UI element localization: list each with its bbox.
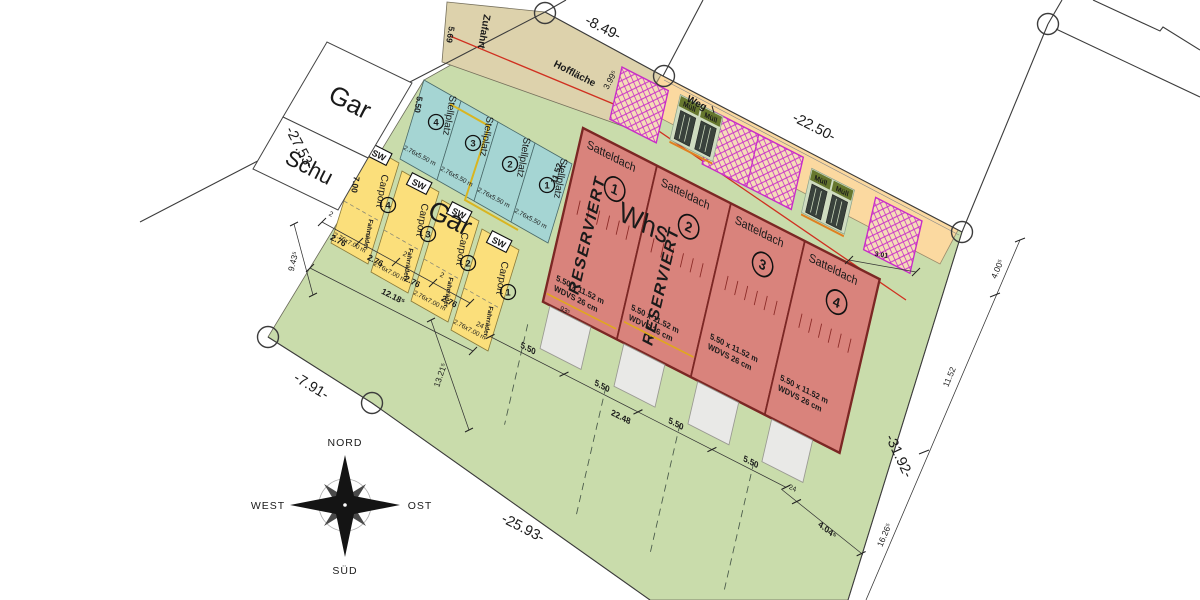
svg-text:4: 4 bbox=[385, 201, 391, 212]
dim-right-c: 16.26⁵ bbox=[875, 521, 894, 548]
stall-gap-1: 2 bbox=[327, 211, 334, 219]
compass-east-label: OST bbox=[408, 500, 433, 512]
svg-text:4: 4 bbox=[433, 118, 439, 129]
svg-text:3: 3 bbox=[470, 139, 475, 150]
boundary-dim-lower-left: -7.91- bbox=[291, 370, 332, 403]
site-plan-page: Stellplatz Stellplatz Stellplatz Stellpl… bbox=[0, 0, 1200, 600]
compass-west-label: WEST bbox=[251, 500, 285, 512]
svg-text:3: 3 bbox=[425, 230, 430, 241]
compass-north-label: NORD bbox=[328, 437, 363, 449]
svg-text:1: 1 bbox=[505, 288, 511, 299]
dim-right-a: 4.00⁵ bbox=[989, 258, 1006, 280]
svg-text:2: 2 bbox=[507, 160, 512, 171]
boundary-dim-upper-right: -22.50- bbox=[790, 110, 838, 145]
compass-center bbox=[343, 503, 347, 507]
compass-rose: NORD SÜD WEST OST bbox=[251, 437, 432, 577]
compass-south-label: SÜD bbox=[332, 565, 357, 577]
svg-text:2: 2 bbox=[465, 259, 470, 270]
dim-left-a: 9.43⁵ bbox=[286, 250, 301, 272]
dim-right-b: 11.52 bbox=[941, 365, 958, 388]
site-plan-svg: Stellplatz Stellplatz Stellplatz Stellpl… bbox=[0, 0, 1200, 600]
